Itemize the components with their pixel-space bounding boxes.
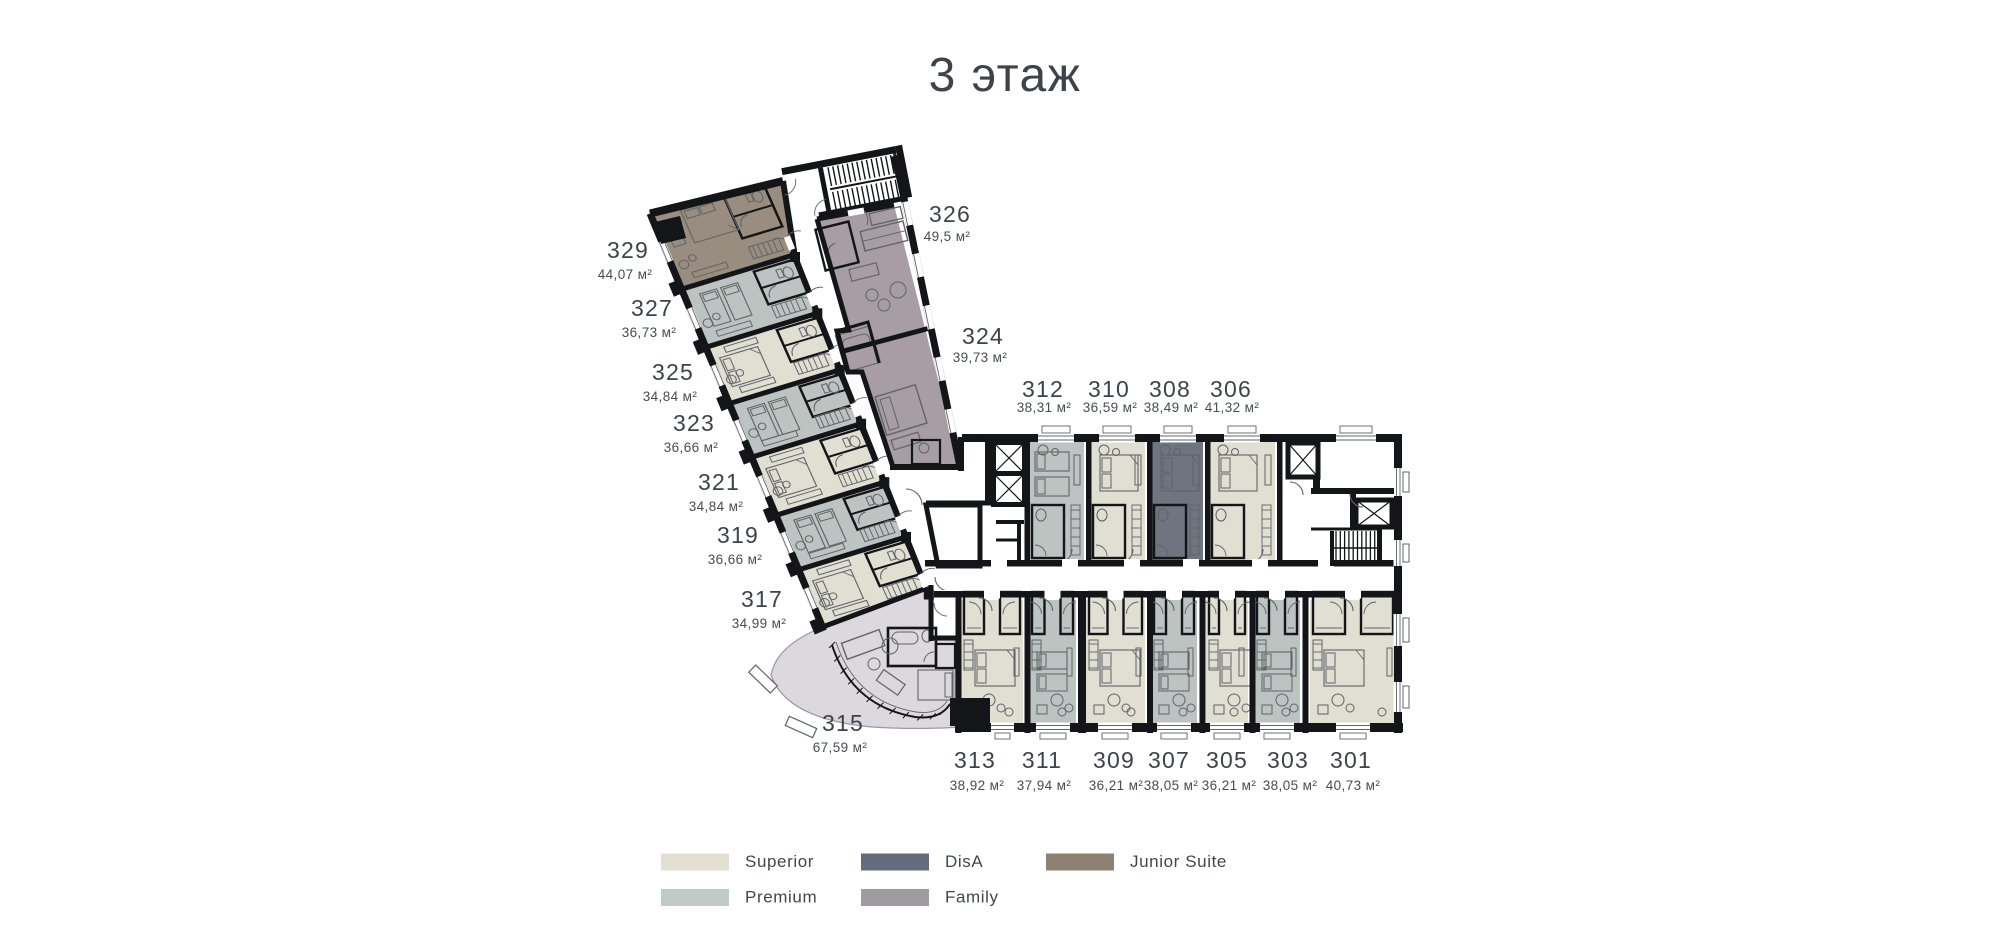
- svg-text:306: 306: [1210, 376, 1252, 402]
- svg-text:36,66 м²: 36,66 м²: [664, 440, 719, 455]
- svg-text:34,84 м²: 34,84 м²: [643, 389, 698, 404]
- svg-text:36,59 м²: 36,59 м²: [1083, 400, 1138, 415]
- svg-text:307: 307: [1148, 747, 1190, 773]
- svg-text:326: 326: [929, 201, 971, 227]
- svg-text:325: 325: [652, 359, 694, 385]
- svg-text:3 этаж: 3 этаж: [929, 49, 1082, 102]
- svg-text:Family: Family: [945, 888, 999, 907]
- svg-text:38,92 м²: 38,92 м²: [950, 778, 1005, 793]
- svg-text:49,5 м²: 49,5 м²: [924, 229, 971, 244]
- svg-text:303: 303: [1267, 747, 1309, 773]
- svg-text:38,05 м²: 38,05 м²: [1144, 778, 1199, 793]
- svg-text:38,31 м²: 38,31 м²: [1017, 400, 1072, 415]
- svg-text:34,99 м²: 34,99 м²: [732, 616, 787, 631]
- svg-text:36,21 м²: 36,21 м²: [1089, 778, 1144, 793]
- svg-text:329: 329: [607, 237, 649, 263]
- svg-text:315: 315: [822, 710, 864, 736]
- svg-text:38,05 м²: 38,05 м²: [1263, 778, 1318, 793]
- svg-text:39,73 м²: 39,73 м²: [953, 350, 1008, 365]
- svg-text:311: 311: [1022, 747, 1062, 773]
- svg-text:Junior Suite: Junior Suite: [1130, 852, 1227, 871]
- svg-text:Premium: Premium: [745, 888, 817, 907]
- svg-text:36,66 м²: 36,66 м²: [708, 552, 763, 567]
- svg-text:305: 305: [1206, 747, 1248, 773]
- svg-text:Superior: Superior: [745, 852, 814, 871]
- svg-text:323: 323: [673, 410, 715, 436]
- svg-text:308: 308: [1149, 376, 1191, 402]
- svg-text:312: 312: [1022, 376, 1064, 402]
- svg-text:317: 317: [741, 586, 783, 612]
- svg-text:38,49 м²: 38,49 м²: [1144, 400, 1199, 415]
- svg-text:34,84 м²: 34,84 м²: [689, 499, 744, 514]
- svg-text:324: 324: [962, 323, 1004, 349]
- svg-text:41,32 м²: 41,32 м²: [1205, 400, 1260, 415]
- svg-text:44,07 м²: 44,07 м²: [598, 267, 653, 282]
- svg-text:37,94 м²: 37,94 м²: [1017, 778, 1072, 793]
- svg-text:327: 327: [631, 295, 673, 321]
- svg-text:313: 313: [954, 747, 996, 773]
- svg-text:DisA: DisA: [945, 852, 983, 871]
- svg-text:36,73 м²: 36,73 м²: [622, 325, 677, 340]
- svg-text:301: 301: [1330, 747, 1372, 773]
- svg-text:319: 319: [717, 522, 759, 548]
- svg-text:67,59 м²: 67,59 м²: [813, 740, 868, 755]
- svg-text:309: 309: [1093, 747, 1135, 773]
- svg-text:36,21 м²: 36,21 м²: [1202, 778, 1257, 793]
- svg-text:321: 321: [698, 469, 740, 495]
- svg-text:40,73 м²: 40,73 м²: [1326, 778, 1381, 793]
- svg-text:310: 310: [1088, 376, 1130, 402]
